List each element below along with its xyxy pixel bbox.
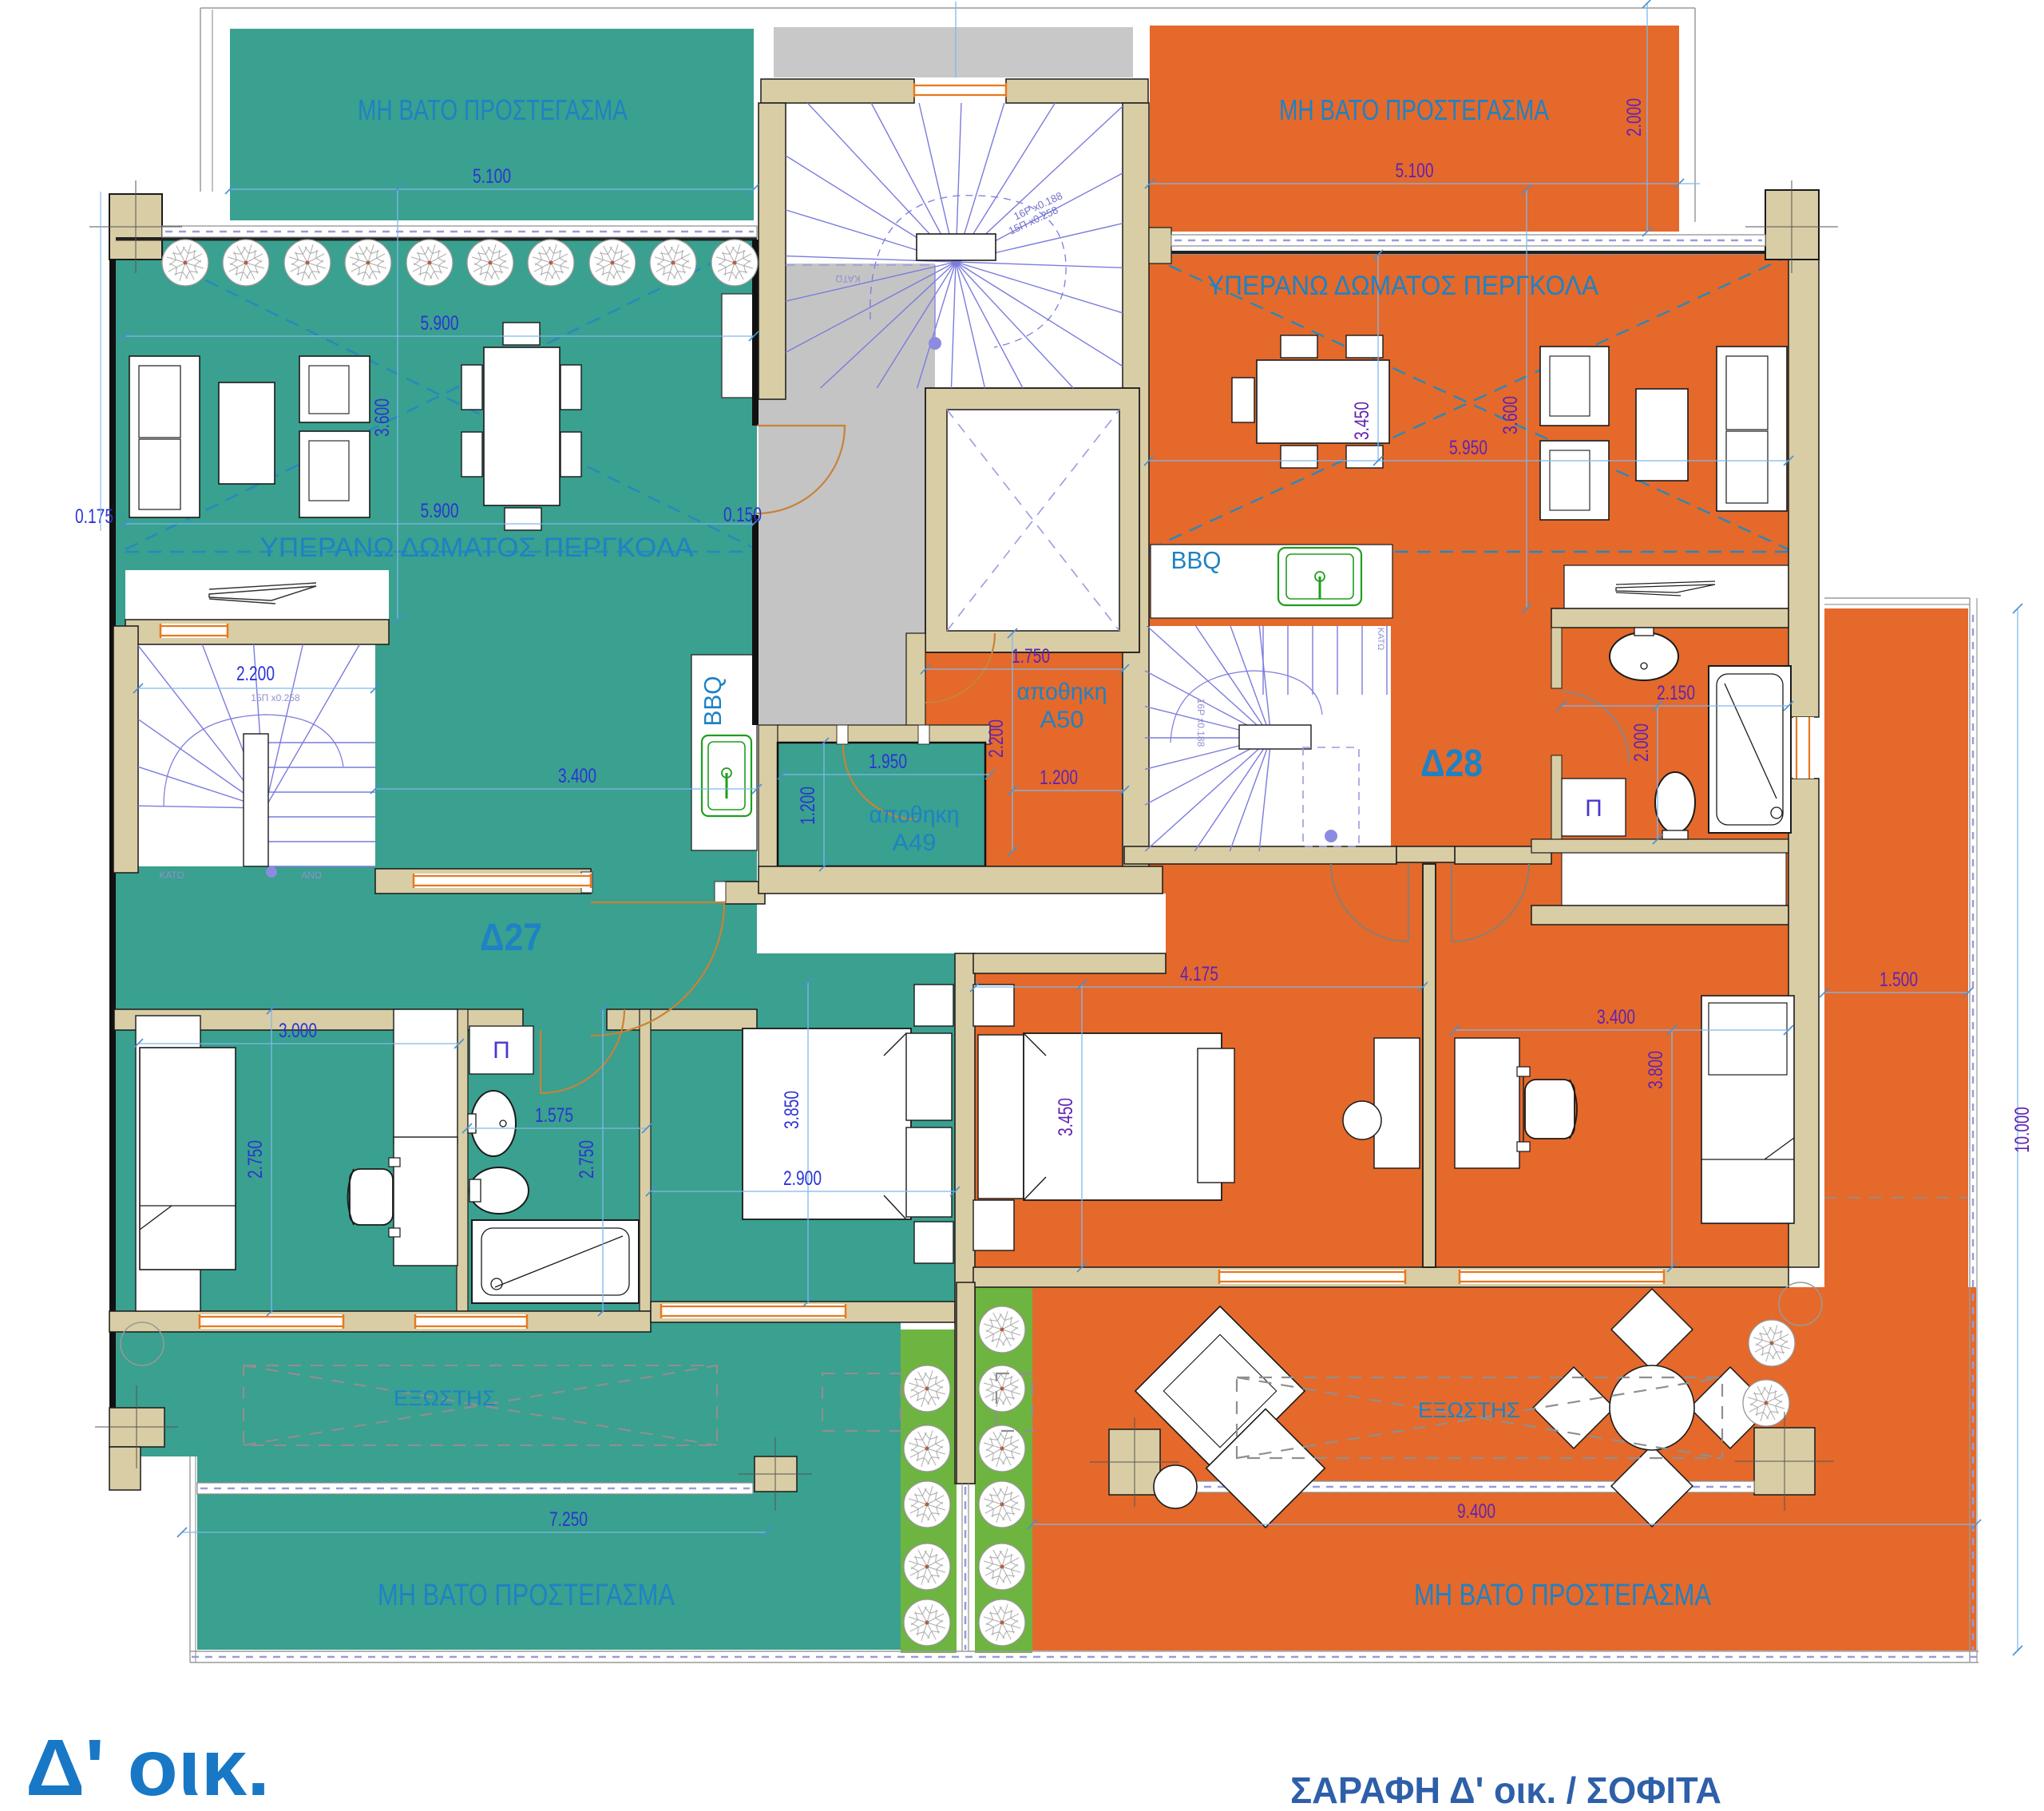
svg-text:1.500: 1.500 [1880, 969, 1918, 991]
svg-text:BBQ: BBQ [1171, 546, 1222, 574]
svg-text:2.000: 2.000 [1623, 98, 1646, 137]
svg-text:ΚΑΤΩ: ΚΑΤΩ [159, 870, 184, 881]
svg-text:ΜΗ ΒΑΤΟ ΠΡΟΣΤΕΓΑΣΜΑ: ΜΗ ΒΑΤΟ ΠΡΟΣΤΕΓΑΣΜΑ [378, 1579, 675, 1612]
svg-text:ΑΝΩ: ΑΝΩ [301, 870, 322, 881]
svg-text:A50: A50 [1040, 707, 1084, 733]
svg-text:2.150: 2.150 [1657, 682, 1695, 704]
svg-text:αποθηκη: αποθηκη [1017, 679, 1107, 705]
svg-text:9.400: 9.400 [1457, 1500, 1495, 1523]
svg-text:2.750: 2.750 [576, 1140, 598, 1179]
svg-text:2.000: 2.000 [1630, 723, 1653, 762]
svg-text:ΕΞΩΣΤΗΣ: ΕΞΩΣΤΗΣ [394, 1386, 496, 1410]
svg-text:5.950: 5.950 [1449, 437, 1487, 459]
svg-text:1.575: 1.575 [535, 1104, 573, 1127]
svg-text:ΜΗ ΒΑΤΟ ΠΡΟΣΤΕΓΑΣΜΑ: ΜΗ ΒΑΤΟ ΠΡΟΣΤΕΓΑΣΜΑ [358, 93, 628, 126]
svg-text:A49: A49 [893, 830, 937, 856]
svg-text:10.000: 10.000 [2011, 1107, 2034, 1153]
svg-text:4.175: 4.175 [1180, 963, 1218, 985]
svg-text:3.450: 3.450 [1351, 402, 1373, 440]
svg-text:2.900: 2.900 [783, 1167, 822, 1190]
svg-text:1.750: 1.750 [1012, 645, 1050, 668]
svg-text:ΕΞΩΣΤΗΣ: ΕΞΩΣΤΗΣ [1418, 1398, 1520, 1422]
svg-text:ΥΠΕΡΑΝΩ ΔΩΜΑΤΟΣ ΠΕΡΓΚΟΛΑ: ΥΠΕΡΑΝΩ ΔΩΜΑΤΟΣ ΠΕΡΓΚΟΛΑ [260, 533, 694, 563]
svg-text:5.900: 5.900 [421, 500, 459, 522]
svg-text:ΥΠΕΡΑΝΩ ΔΩΜΑΤΟΣ ΠΕΡΓΚΟΛΑ: ΥΠΕΡΑΝΩ ΔΩΜΑΤΟΣ ΠΕΡΓΚΟΛΑ [1207, 271, 1598, 301]
svg-text:7.250: 7.250 [549, 1508, 588, 1531]
svg-text:αποθηκη: αποθηκη [869, 802, 960, 828]
svg-text:2.200: 2.200 [985, 719, 1008, 758]
svg-text:0.150: 0.150 [723, 504, 762, 526]
svg-text:3.400: 3.400 [558, 765, 596, 787]
svg-text:3.400: 3.400 [1597, 1006, 1635, 1028]
svg-text:3.450: 3.450 [1055, 1098, 1077, 1136]
svg-text:15Π x0.258: 15Π x0.258 [251, 692, 300, 703]
svg-text:2.200: 2.200 [236, 663, 275, 685]
svg-text:3.000: 3.000 [279, 1020, 317, 1042]
svg-text:ΜΗ ΒΑΤΟ ΠΡΟΣΤΕΓΑΣΜΑ: ΜΗ ΒΑΤΟ ΠΡΟΣΤΕΓΑΣΜΑ [1414, 1579, 1712, 1612]
svg-text:5.900: 5.900 [421, 312, 459, 335]
svg-text:5.100: 5.100 [473, 165, 511, 188]
svg-text:BBQ: BBQ [699, 676, 727, 727]
svg-text:3.600: 3.600 [1499, 396, 1522, 434]
svg-text:1.200: 1.200 [797, 787, 819, 825]
svg-text:ΚΑΤΩ: ΚΑΤΩ [1376, 628, 1385, 651]
svg-text:1.950: 1.950 [869, 751, 907, 773]
svg-text:Π: Π [493, 1037, 510, 1064]
svg-text:ΜΗ ΒΑΤΟ ΠΡΟΣΤΕΓΑΣΜΑ: ΜΗ ΒΑΤΟ ΠΡΟΣΤΕΓΑΣΜΑ [1279, 93, 1549, 126]
svg-text:1.200: 1.200 [1040, 767, 1078, 789]
svg-text:16P x0.188: 16P x0.188 [1195, 699, 1206, 747]
svg-text:3.600: 3.600 [371, 398, 394, 437]
svg-text:Δ27: Δ27 [480, 917, 542, 959]
svg-text:3.800: 3.800 [1645, 1051, 1667, 1089]
svg-text:ΚΑΤΩ: ΚΑΤΩ [835, 273, 860, 284]
svg-text:5.100: 5.100 [1396, 160, 1434, 182]
svg-text:2.750: 2.750 [244, 1140, 267, 1179]
svg-text:ΣΑΡΑΦΗ Δ' οικ. / ΣΟΦΙΤΑ: ΣΑΡΑΦΗ Δ' οικ. / ΣΟΦΙΤΑ [1290, 1769, 1721, 1811]
svg-text:3.850: 3.850 [781, 1091, 803, 1129]
svg-text:Π: Π [1585, 795, 1602, 822]
svg-text:0.175: 0.175 [75, 505, 113, 528]
svg-text:Δ' οικ.: Δ' οικ. [26, 1723, 270, 1811]
svg-text:Δ28: Δ28 [1420, 743, 1483, 785]
